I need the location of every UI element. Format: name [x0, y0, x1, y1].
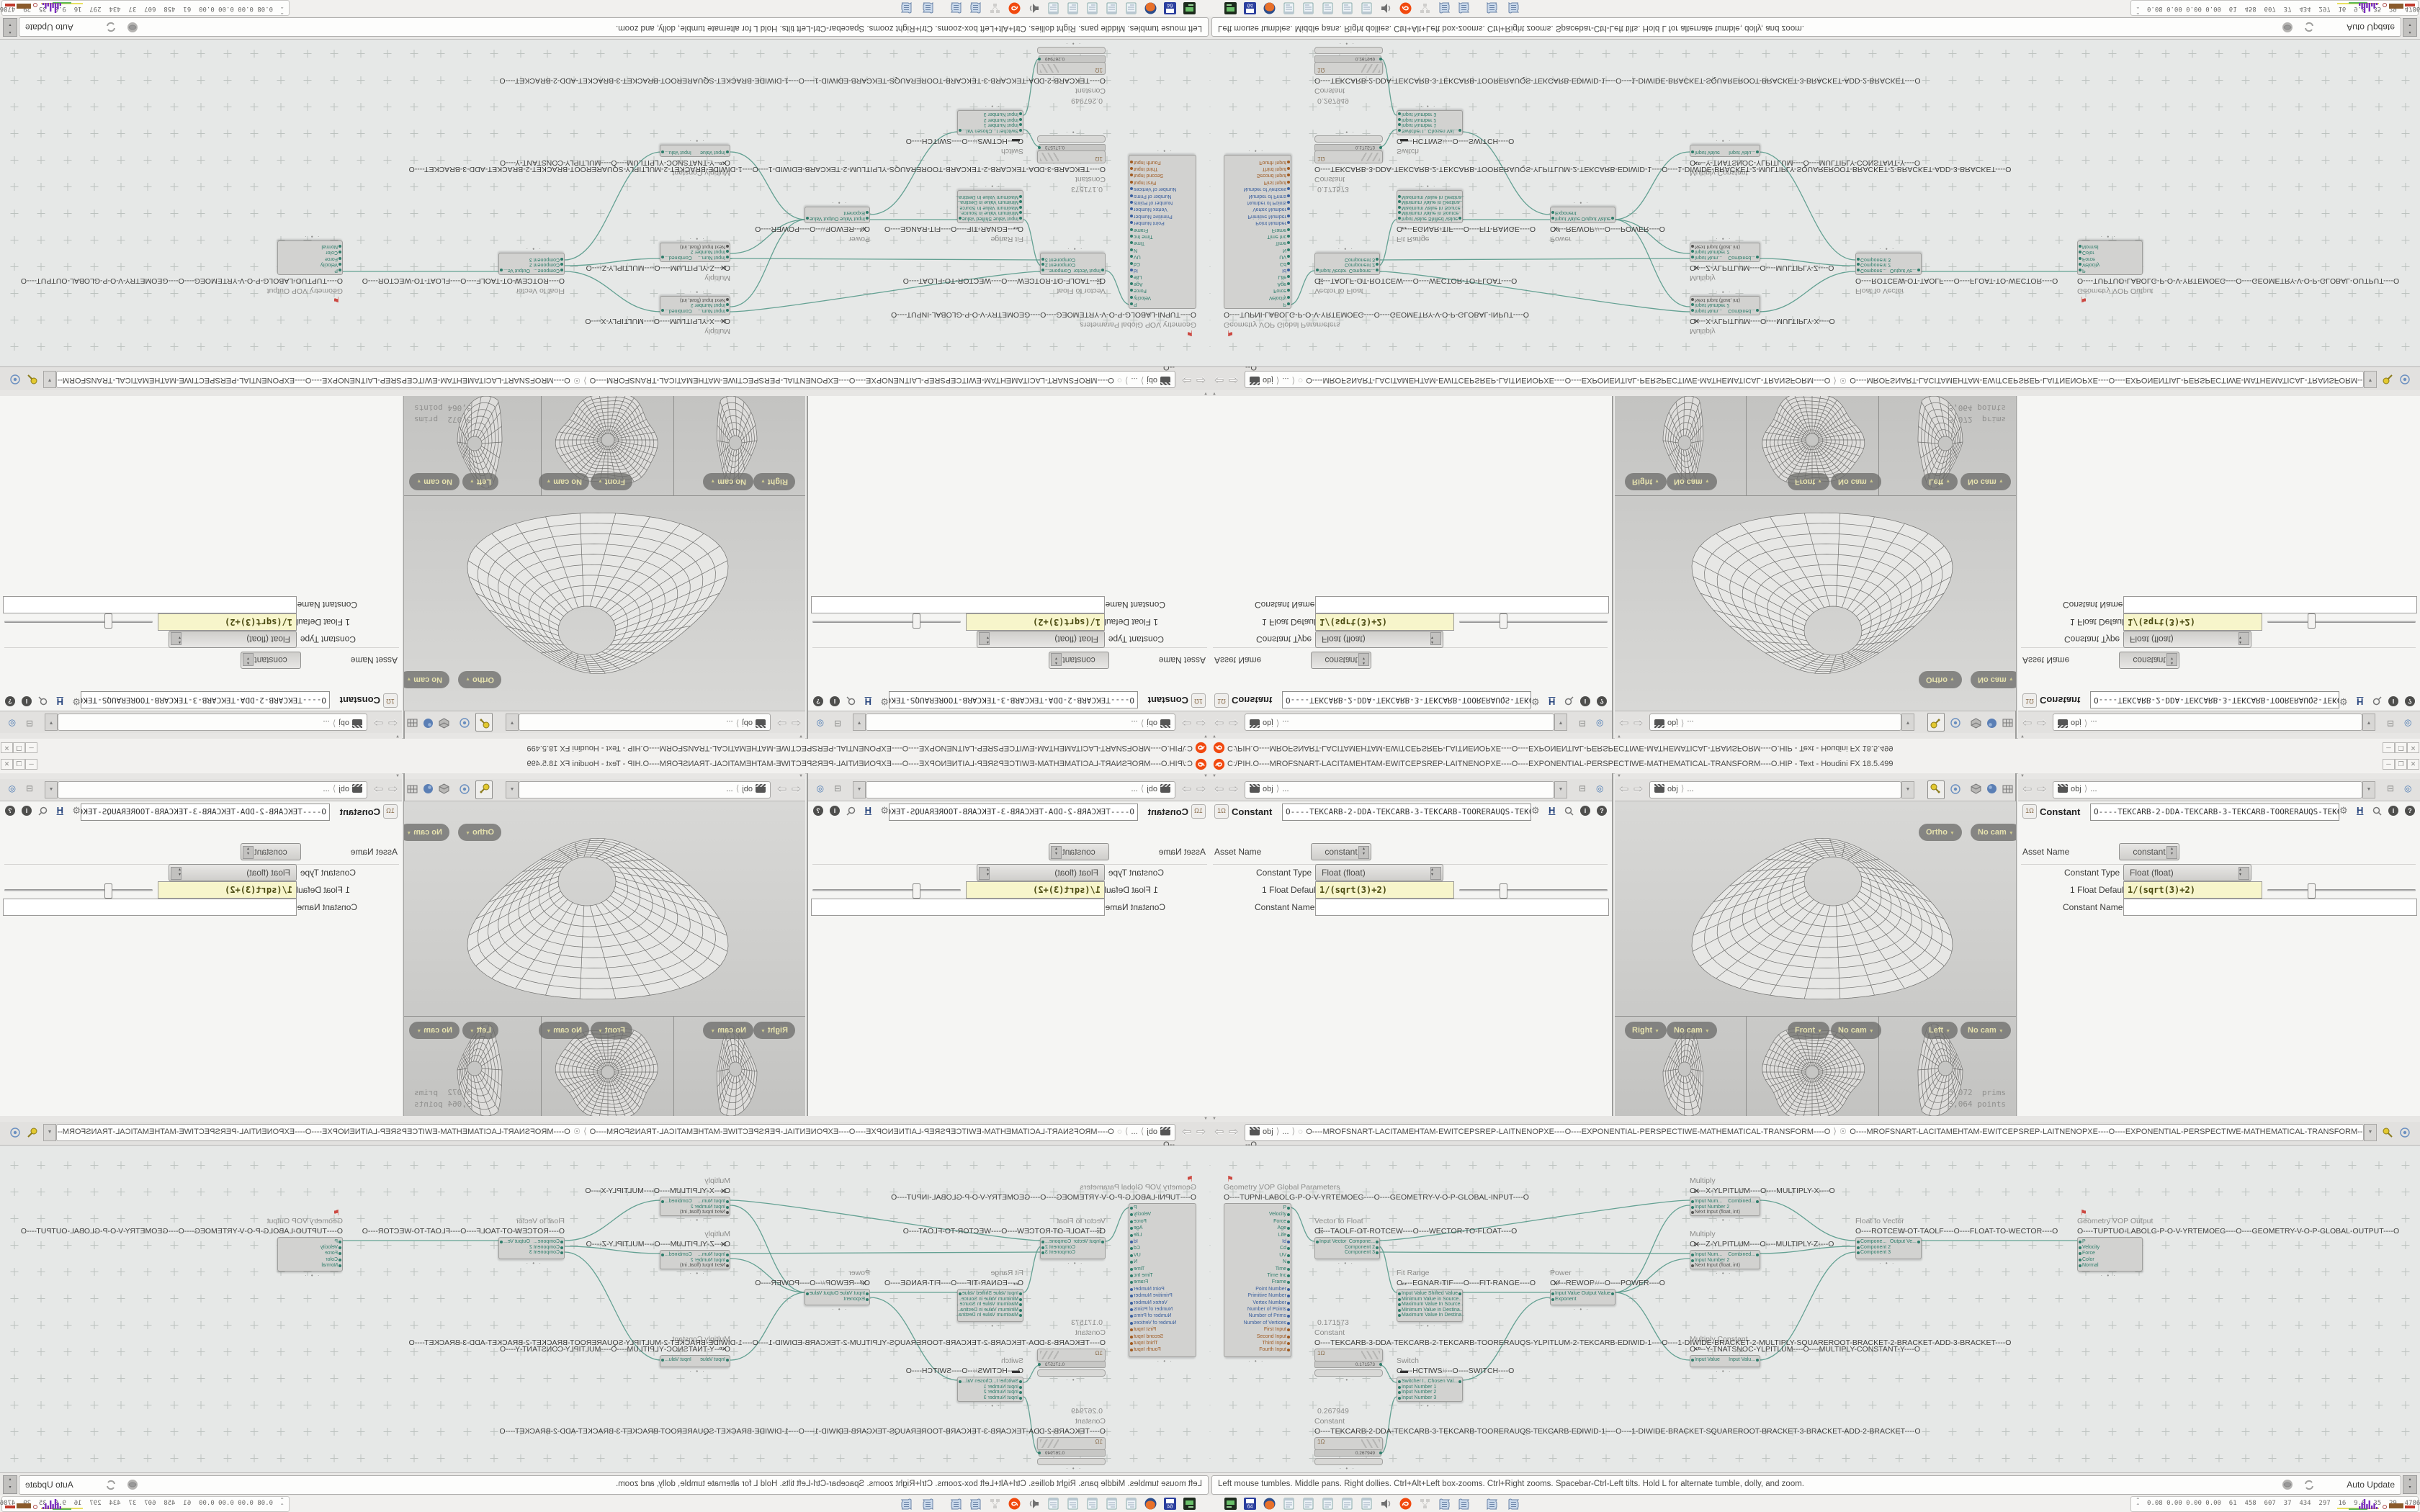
- output-port[interactable]: Output Ve...: [503, 267, 530, 273]
- vop-node-global-params[interactable]: PVelocityForceAgeLifeIdCdUVNTimeTime Inc…: [1129, 155, 1196, 309]
- radial-menu-icon[interactable]: ◎: [2404, 719, 2411, 729]
- forward-arrow-icon[interactable]: ⇨: [1182, 1125, 1191, 1139]
- pane-strip[interactable]: ▼: [1210, 732, 1612, 739]
- vop-node-constant-2[interactable]: 1Ω: [1037, 62, 1106, 75]
- houdini-help-icon[interactable]: H: [57, 696, 63, 707]
- input-port[interactable]: Input Number 3: [984, 1395, 1018, 1401]
- output-port[interactable]: Combined...: [665, 1252, 692, 1258]
- pin-pane-icon[interactable]: ⊟: [26, 783, 33, 793]
- small-view-camera-pill[interactable]: No cam ▼: [1960, 473, 2011, 490]
- output-port[interactable]: Frame: [1272, 227, 1286, 233]
- float-default-field[interactable]: 1/(sqrt(3)+2): [1315, 613, 1454, 631]
- small-view-name-pill[interactable]: Left ▼: [1922, 1022, 1958, 1039]
- radial-menu-icon[interactable]: ◎: [817, 783, 824, 793]
- output-port[interactable]: Vertex Number: [1134, 1300, 1168, 1306]
- update-mode-spinner[interactable]: ▴▾: [3, 18, 17, 37]
- houdini-help-icon[interactable]: H: [865, 696, 871, 707]
- output-port[interactable]: Cd: [1134, 261, 1140, 266]
- asset-name-value[interactable]: constant▴▾: [1311, 843, 1371, 860]
- input-port[interactable]: Next Input (float, int): [680, 1210, 725, 1215]
- spinner-icon[interactable]: ▴▾: [979, 632, 990, 645]
- radial-menu-icon[interactable]: ◎: [9, 783, 16, 793]
- output-port[interactable]: First Input: [1264, 179, 1286, 185]
- spinner-icon[interactable]: ▴▾: [1430, 632, 1441, 645]
- small-view-camera-pill[interactable]: No cam ▼: [703, 473, 753, 490]
- output-port[interactable]: Component 2: [1345, 261, 1375, 267]
- taskbar-icon-script[interactable]: [1507, 2, 1520, 14]
- output-port[interactable]: Velocity: [1269, 1212, 1286, 1218]
- constant-vop-icon[interactable]: 1Ω: [1191, 804, 1206, 819]
- radial-menu-icon[interactable]: ◎: [1596, 719, 1603, 729]
- restore-button[interactable]: ❐: [13, 759, 25, 770]
- constant-type-dropdown[interactable]: Float (float)▴▾: [2123, 864, 2251, 881]
- taskbar-icon-houdini[interactable]: [1399, 2, 1412, 14]
- output-port[interactable]: Time: [1276, 1266, 1286, 1272]
- output-flag-icon[interactable]: ⚑: [2080, 294, 2087, 304]
- input-port[interactable]: Maximum Value In Source..: [1402, 204, 1463, 210]
- path-parent-node[interactable]: O----MROFSNART-LACITAMEHTAM-EWITCEPSREP-…: [1306, 376, 1830, 384]
- input-port[interactable]: Next Input (float, int): [1695, 1210, 1740, 1215]
- output-port[interactable]: Component 3: [1345, 1250, 1375, 1256]
- small-view-camera-pill[interactable]: No cam ▼: [409, 1022, 460, 1039]
- asset-name-value[interactable]: constant▴▾: [241, 843, 301, 860]
- asset-name-value[interactable]: constant▴▾: [1049, 652, 1109, 669]
- small-view-camera-pill[interactable]: No cam ▼: [1831, 1022, 1881, 1039]
- input-port[interactable]: Switcher I...: [1402, 127, 1428, 133]
- float-default-slider[interactable]: [4, 889, 153, 891]
- small-view-camera-pill[interactable]: No cam ▼: [539, 473, 589, 490]
- vop-node-multiply-z[interactable]: Input Num...Input Number 2Next Input (fl…: [660, 1250, 730, 1269]
- output-port[interactable]: Fourth Input: [1134, 159, 1161, 165]
- spinner-icon[interactable]: ▴▾: [2166, 653, 2177, 666]
- taskbar-icon-network-faded[interactable]: [989, 1498, 1001, 1510]
- slider-handle[interactable]: [1500, 883, 1507, 899]
- taskbar-icon-speaker[interactable]: [1028, 2, 1040, 14]
- output-port[interactable]: Time: [1134, 240, 1144, 246]
- snap-grid-icon[interactable]: [2002, 783, 2013, 794]
- output-port[interactable]: Frame: [1134, 1279, 1148, 1285]
- output-port[interactable]: Output Value: [810, 215, 838, 221]
- float-default-slider[interactable]: [812, 621, 961, 623]
- input-port[interactable]: Normal: [2082, 1263, 2099, 1269]
- context-ellipsis[interactable]: ...: [1282, 785, 1289, 793]
- vop-node-multiply-z[interactable]: Input Num...Input Number 2Next Input (fl…: [1690, 243, 1760, 262]
- pane-strip[interactable]: ▼: [808, 732, 1210, 739]
- output-port[interactable]: N: [1283, 247, 1286, 253]
- output-port[interactable]: Id: [1282, 267, 1286, 273]
- node-name-field[interactable]: O----TEKCARB-2-DDA-TEKCARB-3-TEKCARB-TOO…: [1282, 804, 1531, 821]
- input-port[interactable]: Next Input (float, int): [680, 243, 725, 249]
- context-ellipsis[interactable]: ...: [1282, 719, 1289, 727]
- constant-vop-icon[interactable]: 1Ω: [383, 804, 398, 819]
- input-port[interactable]: Input Value: [1695, 149, 1720, 155]
- big-view-name-pill[interactable]: Ortho ▼: [1919, 671, 1962, 688]
- spinner-icon[interactable]: ▴▾: [243, 653, 254, 666]
- context-ellipsis[interactable]: ...: [1687, 719, 1693, 727]
- input-port[interactable]: Input Vector: [1074, 267, 1101, 273]
- restore-button[interactable]: ❐: [2395, 759, 2407, 770]
- input-port[interactable]: Exponent: [843, 1297, 865, 1302]
- forward-arrow-icon[interactable]: ⇨: [2037, 782, 2046, 796]
- taskbar-icon-console[interactable]: [1183, 1498, 1196, 1510]
- input-port[interactable]: Velocity: [321, 261, 338, 267]
- input-port[interactable]: P: [334, 267, 338, 273]
- vop-node-constant-1[interactable]: 1Ω: [1037, 150, 1106, 163]
- small-view-name-pill[interactable]: Front ▼: [591, 1022, 632, 1039]
- input-port[interactable]: Force: [2082, 256, 2095, 261]
- node-name-field[interactable]: O----TEKCARB-2-DDA-TEKCARB-3-TEKCARB-TOO…: [889, 804, 1138, 821]
- context-ellipsis[interactable]: ...: [1282, 376, 1289, 384]
- path-dropdown[interactable]: ▼: [506, 781, 519, 798]
- small-view-name-pill[interactable]: Front ▼: [1788, 473, 1829, 490]
- forward-arrow-icon[interactable]: ⇨: [1229, 782, 1238, 796]
- context-ellipsis[interactable]: ...: [323, 785, 329, 793]
- slider-handle[interactable]: [913, 613, 920, 629]
- output-port[interactable]: Output Ve...: [1890, 1239, 1917, 1245]
- output-port[interactable]: Force: [1134, 1219, 1147, 1225]
- bullseye-icon[interactable]: [10, 374, 20, 384]
- output-port[interactable]: Number of Vertices: [1243, 186, 1286, 192]
- output-port[interactable]: Number of Prims: [1248, 1313, 1286, 1319]
- scene-viewport[interactable]: Ortho ▼ No cam ▼ Right ▼ No cam ▼ Front …: [404, 396, 805, 711]
- spinner-icon[interactable]: ▴▾: [1358, 653, 1369, 666]
- vop-node-power[interactable]: Input ValueExponentOutput Value: [1550, 1289, 1615, 1305]
- output-port[interactable]: Time: [1134, 1266, 1144, 1272]
- taskbar-icon-notepad[interactable]: [1322, 1498, 1334, 1510]
- output-port[interactable]: Second Input: [1134, 172, 1163, 178]
- small-view-name-pill[interactable]: Right ▼: [753, 473, 795, 490]
- asset-name-value[interactable]: constant▴▾: [1311, 652, 1371, 669]
- close-button[interactable]: ✕: [2407, 742, 2419, 753]
- output-port[interactable]: Combined...: [665, 254, 692, 260]
- input-port[interactable]: Input Vector: [1074, 1239, 1101, 1245]
- output-port[interactable]: Input Valu...: [665, 149, 691, 155]
- pin-pane-icon[interactable]: ⊟: [834, 719, 841, 729]
- small-view-name-pill[interactable]: Left ▼: [462, 473, 498, 490]
- input-port[interactable]: Component 3: [1860, 256, 1891, 262]
- context-obj[interactable]: obj: [1147, 719, 1157, 727]
- output-port[interactable]: Combined...: [665, 307, 692, 313]
- info-icon[interactable]: i: [1580, 806, 1590, 816]
- gear-icon[interactable]: ⚙: [1531, 696, 1540, 707]
- title-bar[interactable]: C:/PIH.O----MROFSNART-LACITAMEHTAM-EWITC…: [1210, 738, 2420, 756]
- input-port[interactable]: Input Num...: [698, 254, 725, 260]
- bullseye-icon[interactable]: [2400, 374, 2410, 384]
- output-port[interactable]: Number of Prims: [1134, 1313, 1172, 1319]
- context-path[interactable]: obj⟩...: [58, 781, 367, 798]
- minimize-button[interactable]: ─: [25, 742, 37, 753]
- gear-icon[interactable]: ⚙: [2339, 805, 2348, 816]
- input-port[interactable]: Compone...: [534, 267, 560, 273]
- output-flag-icon[interactable]: ⚑: [333, 294, 340, 304]
- auto-update-mode[interactable]: Auto Update: [2347, 1480, 2395, 1490]
- constant-vop-icon[interactable]: 1Ω: [383, 693, 398, 708]
- output-port[interactable]: Cd: [1280, 261, 1286, 266]
- vop-node-fit-range[interactable]: Input ValueMinimum Value in Source..Maxi…: [957, 1289, 1023, 1322]
- output-port[interactable]: Combined...: [665, 1199, 692, 1205]
- constant-vop-icon[interactable]: 1Ω: [1191, 693, 1206, 708]
- slider-handle[interactable]: [1500, 613, 1507, 629]
- taskbar-icon-notepad[interactable]: [1106, 1498, 1118, 1510]
- taskbar-icon-speaker[interactable]: [1380, 1498, 1392, 1510]
- vop-node-constant-2[interactable]: 1Ω: [1037, 1437, 1106, 1450]
- update-mode-spinner[interactable]: ▴▾: [2403, 18, 2417, 37]
- output-port[interactable]: Shifted Value: [962, 1291, 992, 1297]
- output-port[interactable]: N: [1134, 1259, 1137, 1265]
- vop-node-multiply-constant[interactable]: Input ValueInput Valu...: [660, 1355, 730, 1367]
- taskbar-icon-notepad[interactable]: [1086, 1498, 1098, 1510]
- input-port[interactable]: Input Value: [1695, 1357, 1720, 1363]
- taskbar-icon-script[interactable]: [1507, 1498, 1520, 1510]
- back-arrow-icon[interactable]: ⇦: [1196, 1125, 1206, 1139]
- node-name-field[interactable]: O----TEKCARB-2-DDA-TEKCARB-3-TEKCARB-TOO…: [1282, 691, 1531, 708]
- output-port[interactable]: Time Inc: [1134, 233, 1153, 239]
- input-port[interactable]: Input Num...: [1695, 254, 1722, 260]
- path-dropdown[interactable]: ▼: [1901, 714, 1914, 731]
- constant-name-field[interactable]: [3, 899, 297, 916]
- taskbar-icon-script[interactable]: [922, 2, 934, 14]
- path-dropdown[interactable]: ▼: [45, 781, 58, 798]
- node-name-field[interactable]: O----TEKCARB-2-DDA-TEKCARB-3-TEKCARB-TOO…: [2090, 691, 2339, 708]
- small-view-name-pill[interactable]: Right ▼: [753, 1022, 795, 1039]
- input-port[interactable]: Component 3: [529, 256, 560, 262]
- output-port[interactable]: Number of Vertices: [1243, 1320, 1286, 1326]
- constant-name-field[interactable]: [811, 899, 1105, 916]
- spinner-icon[interactable]: ▴▾: [2238, 632, 2249, 645]
- float-default-field[interactable]: 1/(sqrt(3)+2): [1315, 881, 1454, 899]
- constant-type-dropdown[interactable]: Float (float)▴▾: [2123, 631, 2251, 648]
- context-path[interactable]: obj⟩...: [866, 714, 1175, 731]
- search-icon[interactable]: [2372, 696, 2382, 706]
- vop-node-float-to-vector[interactable]: Compone...Component 2Component 3Output V…: [498, 253, 565, 275]
- houdini-help-icon[interactable]: H: [1549, 805, 1555, 816]
- help-icon[interactable]: ?: [5, 806, 15, 816]
- key-icon[interactable]: [27, 1128, 37, 1138]
- restore-button[interactable]: ❐: [2395, 742, 2407, 753]
- output-port[interactable]: Age: [1278, 1225, 1286, 1231]
- input-port[interactable]: Input Number 2: [1695, 248, 1729, 254]
- taskbar-icon-notepad[interactable]: [1302, 2, 1314, 14]
- back-arrow-icon[interactable]: ⇦: [1214, 1125, 1224, 1139]
- pin-pane-icon[interactable]: ⊟: [26, 719, 33, 729]
- context-ellipsis[interactable]: ...: [2090, 785, 2097, 793]
- output-port[interactable]: Component 3: [1045, 256, 1075, 262]
- bullseye-icon[interactable]: [1950, 784, 1960, 794]
- float-default-field[interactable]: 1/(sqrt(3)+2): [966, 881, 1105, 899]
- performance-monitor[interactable]: ⌃⌃ 0.08 0.00 0.00 0.00 61 458 607 37 434…: [2130, 1496, 2419, 1512]
- spinner-icon[interactable]: ▴▾: [979, 867, 990, 880]
- taskbar-icon-script[interactable]: [950, 1498, 962, 1510]
- big-view-camera-pill[interactable]: No cam ▼: [404, 824, 449, 841]
- context-ellipsis[interactable]: ...: [1282, 1128, 1289, 1136]
- big-view-camera-pill[interactable]: No cam ▼: [1971, 671, 2016, 688]
- context-obj[interactable]: obj: [1147, 785, 1157, 793]
- info-icon[interactable]: i: [22, 696, 32, 706]
- vop-node-constant-2[interactable]: 1Ω: [1314, 62, 1383, 75]
- vop-node-geometry-vop-output[interactable]: PVelocityForceColorNormal: [2077, 240, 2143, 275]
- vop-node-geometry-vop-output[interactable]: PVelocityForceColorNormal: [277, 1237, 343, 1272]
- taskbar-icon-notepad[interactable]: [1125, 2, 1137, 14]
- path-dropdown[interactable]: ▼: [2364, 1124, 2377, 1141]
- taskbar-icon-script[interactable]: [900, 1498, 913, 1510]
- taskbar-icon-notepad[interactable]: [1283, 1498, 1295, 1510]
- context-path[interactable]: obj⟩...: [866, 781, 1175, 798]
- constant-name-field[interactable]: [1315, 596, 1609, 613]
- pin-pane-icon[interactable]: ⊟: [834, 783, 841, 793]
- float-default-slider[interactable]: [812, 889, 961, 891]
- big-view-camera-pill[interactable]: No cam ▼: [404, 671, 449, 688]
- snap-grid-icon[interactable]: [2002, 718, 2013, 729]
- output-port[interactable]: Second Input: [1134, 1334, 1163, 1340]
- taskbar-icon-script[interactable]: [1486, 1498, 1498, 1510]
- vop-node-vector-to-float[interactable]: Input VectorCompone...Component 2Compone…: [1314, 1237, 1380, 1259]
- input-port[interactable]: Next Input (float, int): [1695, 297, 1740, 302]
- shading-cube-icon[interactable]: [1971, 718, 1981, 729]
- radial-menu-icon[interactable]: ◎: [2404, 783, 2411, 793]
- output-port[interactable]: P: [1134, 301, 1137, 307]
- output-port[interactable]: Fourth Input: [1259, 159, 1286, 165]
- close-button[interactable]: ✕: [1, 759, 13, 770]
- vop-node-vector-to-float[interactable]: Input VectorCompone...Component 2Compone…: [1314, 253, 1380, 275]
- minimize-button[interactable]: ─: [25, 759, 37, 770]
- constant-vop-icon[interactable]: 1Ω: [2022, 804, 2037, 819]
- taskbar-icon-houdini[interactable]: [1008, 2, 1021, 14]
- big-view-name-pill[interactable]: Ortho ▼: [458, 671, 501, 688]
- taskbar-icon-script[interactable]: [1458, 1498, 1470, 1510]
- back-arrow-icon[interactable]: ⇦: [1214, 373, 1224, 387]
- context-path[interactable]: obj⟩...: [58, 714, 367, 731]
- context-obj[interactable]: obj: [339, 785, 349, 793]
- houdini-help-icon[interactable]: H: [1549, 696, 1555, 707]
- vop-node-global-params[interactable]: PVelocityForceAgeLifeIdCdUVNTimeTime Inc…: [1129, 1203, 1196, 1357]
- radial-menu-icon[interactable]: ◎: [1596, 783, 1603, 793]
- input-port[interactable]: Input Number 3: [984, 111, 1018, 117]
- back-arrow-icon[interactable]: ⇦: [388, 716, 398, 730]
- context-obj[interactable]: obj: [1263, 719, 1273, 727]
- context-path[interactable]: obj⟩...: [1245, 714, 1554, 731]
- output-port[interactable]: P: [1283, 301, 1286, 307]
- forward-arrow-icon[interactable]: ⇨: [1229, 373, 1238, 387]
- context-ellipsis[interactable]: ...: [1131, 785, 1137, 793]
- back-arrow-icon[interactable]: ⇦: [1619, 782, 1628, 796]
- path-dropdown[interactable]: ▼: [853, 714, 866, 731]
- material-sphere-icon[interactable]: [423, 718, 434, 729]
- help-icon[interactable]: ?: [813, 696, 823, 706]
- context-ellipsis[interactable]: ...: [1131, 1128, 1137, 1136]
- path-dropdown[interactable]: ▼: [506, 714, 519, 731]
- context-obj[interactable]: obj: [1667, 785, 1678, 793]
- constant-type-dropdown[interactable]: Float (float)▴▾: [1315, 631, 1443, 648]
- asset-name-value[interactable]: constant▴▾: [241, 652, 301, 669]
- input-port[interactable]: Input Number 2: [1402, 117, 1436, 122]
- path-dropdown[interactable]: ▼: [2364, 371, 2377, 388]
- output-port[interactable]: Primitive Number: [1247, 1293, 1286, 1299]
- path-dropdown[interactable]: ▼: [1554, 781, 1567, 798]
- back-arrow-icon[interactable]: ⇦: [1196, 782, 1206, 796]
- path-parent-node[interactable]: O----MROFSNART-LACITAMEHTAM-EWITCEPSREP-…: [590, 1128, 1114, 1136]
- input-port[interactable]: Input Number 2: [1695, 302, 1729, 307]
- pin-pane-icon[interactable]: ⊟: [1579, 783, 1586, 793]
- input-port[interactable]: Velocity: [321, 1245, 338, 1251]
- output-port[interactable]: Combined...: [1728, 307, 1755, 313]
- vop-node-power[interactable]: Input ValueExponentOutput Value: [805, 1289, 870, 1305]
- constant-name-field[interactable]: [1315, 899, 1609, 916]
- forward-arrow-icon[interactable]: ⇨: [777, 716, 786, 730]
- vop-network-graph[interactable]: Geometry VOP Global ParametersO----TUPNI…: [0, 40, 1210, 366]
- input-port[interactable]: Maximum Value In Destina..: [1402, 1313, 1464, 1318]
- info-icon[interactable]: i: [2388, 696, 2398, 706]
- houdini-help-icon[interactable]: H: [2357, 805, 2363, 816]
- context-obj[interactable]: obj: [1263, 785, 1273, 793]
- output-port[interactable]: Output Value: [1582, 1291, 1610, 1297]
- help-icon[interactable]: ?: [5, 696, 15, 706]
- vop-node-multiply-constant[interactable]: Input ValueInput Valu...: [1690, 145, 1760, 157]
- search-icon[interactable]: [38, 806, 48, 816]
- output-port[interactable]: Combined...: [1728, 254, 1755, 260]
- key-icon[interactable]: [2383, 374, 2393, 384]
- search-icon[interactable]: [846, 696, 856, 706]
- output-port[interactable]: Fourth Input: [1134, 1347, 1161, 1353]
- output-port[interactable]: Component 2: [1045, 261, 1075, 267]
- output-port[interactable]: Point Number: [1255, 220, 1286, 225]
- bullseye-icon[interactable]: [460, 784, 470, 794]
- small-view-name-pill[interactable]: Left ▼: [1922, 473, 1958, 490]
- small-view-camera-pill[interactable]: No cam ▼: [539, 1022, 589, 1039]
- output-port[interactable]: First Input: [1134, 1327, 1156, 1333]
- taskbar-icon-network-faded[interactable]: [989, 2, 1001, 14]
- input-port[interactable]: Maximum Value In Destina..: [956, 1313, 1018, 1318]
- taskbar-icon-houdini[interactable]: [1399, 1498, 1412, 1510]
- input-port[interactable]: Input Value: [700, 1357, 725, 1363]
- taskbar-icon-script[interactable]: [1486, 2, 1498, 14]
- output-port[interactable]: Cd: [1280, 1246, 1286, 1251]
- taskbar-icon-script[interactable]: [950, 2, 962, 14]
- small-view-name-pill[interactable]: Front ▼: [591, 473, 632, 490]
- node-name-field[interactable]: O----TEKCARB-2-DDA-TEKCARB-3-TEKCARB-TOO…: [2090, 804, 2339, 821]
- help-icon[interactable]: ?: [2405, 806, 2415, 816]
- back-arrow-icon[interactable]: ⇦: [1214, 716, 1224, 730]
- input-port[interactable]: Input Number 2: [691, 248, 725, 254]
- info-icon[interactable]: i: [22, 806, 32, 816]
- output-port[interactable]: Third Input: [1134, 166, 1157, 171]
- context-ellipsis[interactable]: ...: [1131, 376, 1137, 384]
- context-path[interactable]: obj⟩...: [1245, 781, 1554, 798]
- output-flag-icon[interactable]: ⚑: [1186, 328, 1193, 338]
- input-port[interactable]: Next Input (float, int): [680, 1263, 725, 1269]
- output-port[interactable]: Number of Prims: [1134, 193, 1172, 199]
- input-port[interactable]: Velocity: [2082, 1245, 2099, 1251]
- output-port[interactable]: Time Inc: [1267, 233, 1286, 239]
- vop-node-float-to-vector[interactable]: Compone...Component 2Component 3Output V…: [1855, 253, 1922, 275]
- material-sphere-icon[interactable]: [1986, 783, 1997, 794]
- output-port[interactable]: Third Input: [1263, 166, 1286, 171]
- output-port[interactable]: Shifted Value: [962, 215, 992, 221]
- taskbar-icon-script[interactable]: [900, 2, 913, 14]
- output-port[interactable]: Vertex Number: [1252, 1300, 1286, 1306]
- output-port[interactable]: Output Value: [810, 1291, 838, 1297]
- bullseye-icon[interactable]: [460, 718, 470, 728]
- forward-arrow-icon[interactable]: ⇨: [1182, 782, 1191, 796]
- gear-icon[interactable]: ⚙: [72, 696, 81, 707]
- constant-name-field[interactable]: [811, 596, 1105, 613]
- output-port[interactable]: Number of Points: [1247, 199, 1286, 205]
- input-port[interactable]: Input Value: [993, 215, 1018, 221]
- input-port[interactable]: Input Vector: [1319, 1239, 1346, 1245]
- vop-node-vector-to-float[interactable]: Input VectorCompone...Component 2Compone…: [1040, 1237, 1106, 1259]
- search-icon[interactable]: [38, 696, 48, 706]
- slider-handle[interactable]: [2308, 613, 2316, 629]
- pin-pane-icon[interactable]: ⊟: [2387, 783, 2394, 793]
